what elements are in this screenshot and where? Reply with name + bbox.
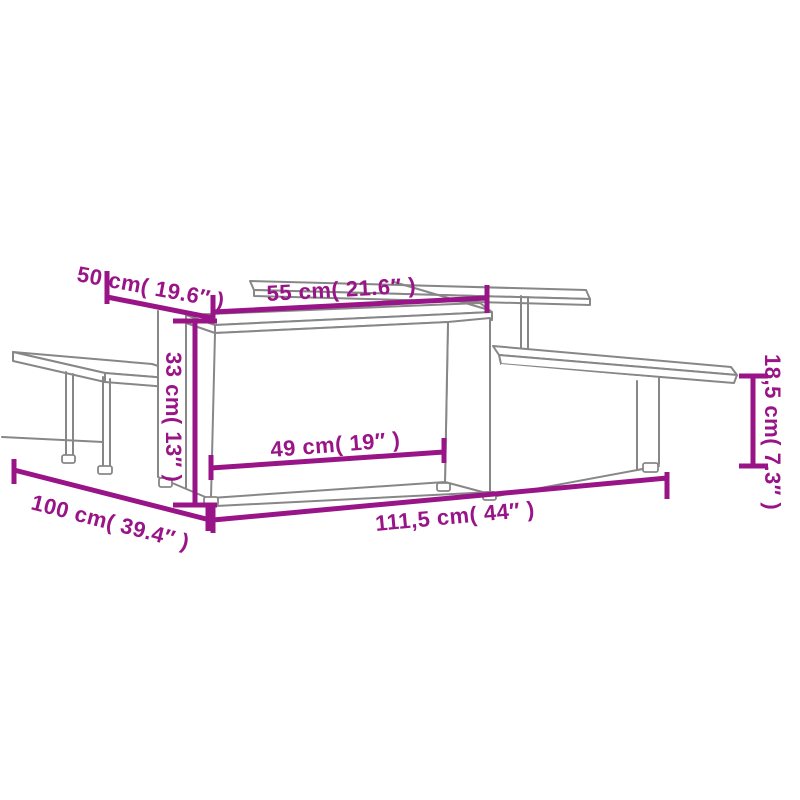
furniture-drawing bbox=[2, 281, 737, 506]
dimension-label-base-depth: 100 cm( 39.4″ ) bbox=[29, 490, 192, 555]
left-table-rear-bottom-edge bbox=[2, 437, 103, 442]
left-table-leg-2 bbox=[103, 377, 110, 468]
dimension-top-depth: 50 cm( 19.6″ ) bbox=[75, 261, 227, 323]
right-table-foot bbox=[643, 463, 658, 472]
diagram-canvas: 50 cm( 19.6″ ) 55 cm( 21.6″ ) 33 cm( 13″… bbox=[0, 0, 800, 800]
tall-table-front-face bbox=[211, 322, 448, 498]
tall-table-right-panel bbox=[445, 318, 490, 494]
dimension-low-height: 18,5 cm( 7.3″ ) bbox=[739, 354, 785, 510]
tall-table-front-right-foot bbox=[437, 483, 450, 491]
left-table-foot-1 bbox=[62, 455, 75, 463]
dimension-label-low-height: 18,5 cm( 7.3″ ) bbox=[760, 354, 785, 510]
product-dimension-image: 50 cm( 19.6″ ) 55 cm( 21.6″ ) 33 cm( 13″… bbox=[0, 0, 800, 800]
right-table-shelf-support bbox=[521, 296, 528, 352]
dimension-label-tall-height: 33 cm( 13″ ) bbox=[161, 352, 186, 482]
left-table-foot-2 bbox=[98, 466, 112, 474]
left-table-leg-1 bbox=[66, 372, 73, 457]
right-table-body-fill bbox=[497, 364, 659, 496]
